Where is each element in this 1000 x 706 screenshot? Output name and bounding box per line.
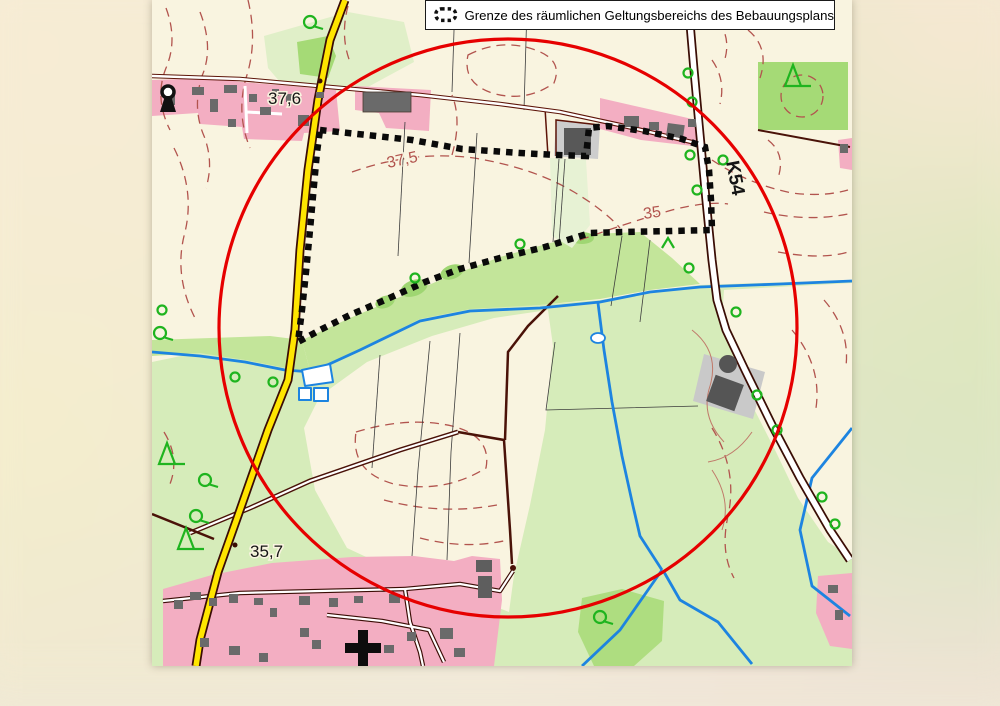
legend-box: Grenze des räumlichen Geltungsbereichs d…: [425, 0, 835, 30]
small-pond: [591, 333, 605, 343]
woodland-patch: [758, 62, 848, 130]
topographic-map: 37,6 35,7 37,5 35 K54 Grenze des räumlic…: [152, 0, 852, 666]
contour-label: 35: [642, 204, 662, 223]
dotted-boundary-icon: [432, 3, 460, 27]
spot-height-label: 37,6: [268, 89, 301, 108]
basin: [299, 388, 311, 400]
legend-label: Grenze des räumlichen Geltungsbereichs d…: [465, 8, 834, 23]
spot-height-label: 35,7: [250, 542, 283, 561]
basin: [314, 388, 328, 401]
